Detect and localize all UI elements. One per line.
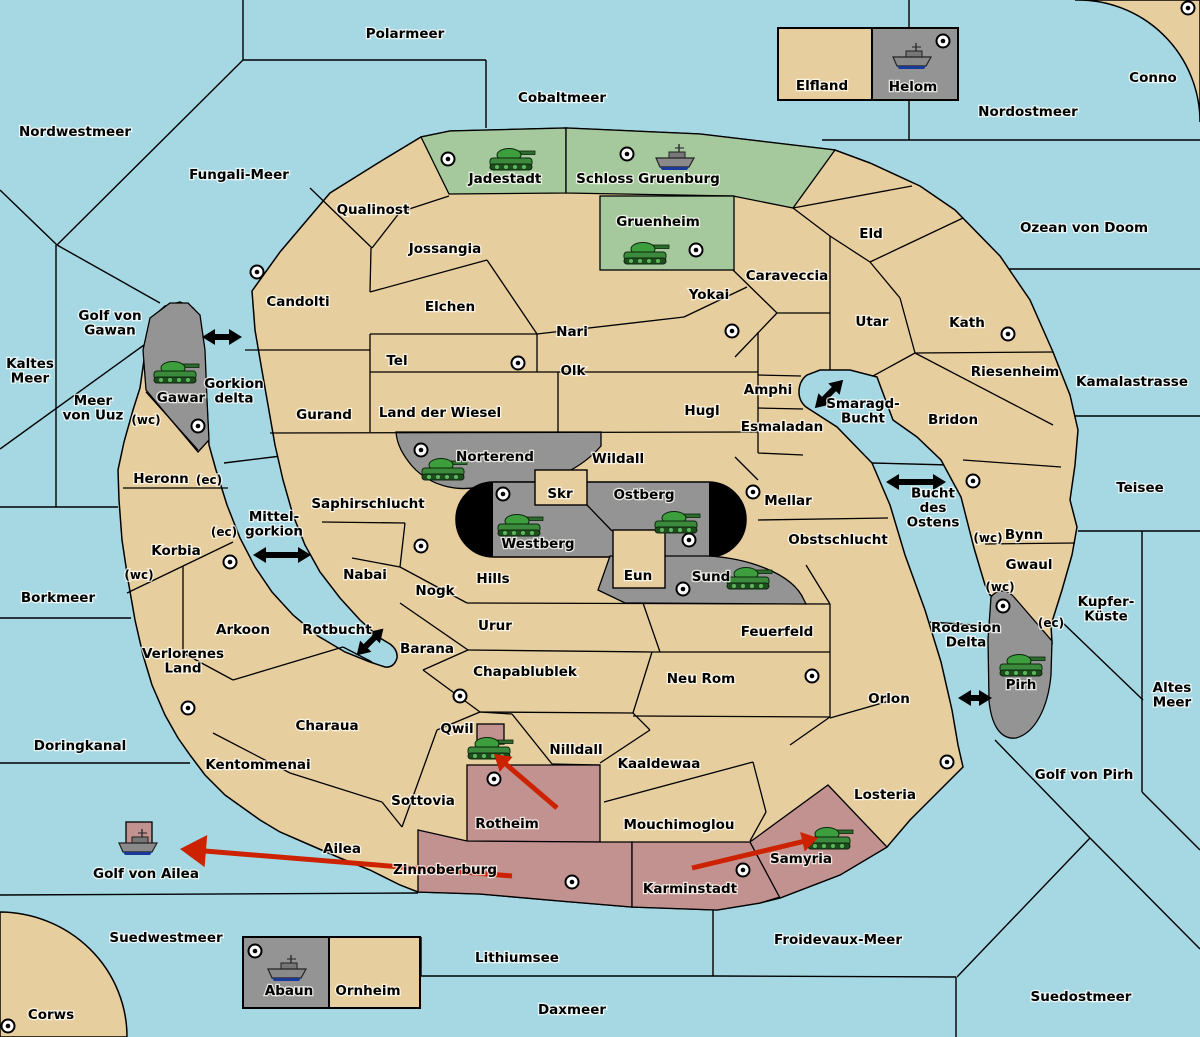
sea-border: [713, 976, 956, 977]
region-label[interactable]: Gruenheim: [616, 214, 700, 230]
region-label[interactable]: Gwaul: [1006, 557, 1053, 573]
region-label[interactable]: Abaun: [265, 983, 313, 999]
region-label[interactable]: Froidevaux-Meer: [774, 932, 902, 948]
region-label[interactable]: Westberg: [501, 536, 574, 552]
region-label[interactable]: Elchen: [425, 299, 475, 315]
region-label[interactable]: Teisee: [1116, 480, 1164, 496]
supply-center-icon: [182, 702, 195, 715]
supply-center-icon: [937, 35, 950, 48]
region-label[interactable]: Korbia: [151, 543, 201, 559]
region-label[interactable]: Fungali-Meer: [189, 167, 289, 183]
supply-center-icon: [997, 600, 1010, 613]
region-label[interactable]: Hugl: [684, 403, 719, 419]
region-label[interactable]: Nogk: [415, 583, 455, 599]
region-label[interactable]: Mellar: [764, 493, 812, 509]
region-label[interactable]: Bridon: [928, 412, 978, 428]
supply-center-icon: [737, 864, 750, 877]
region-label[interactable]: Elfland: [796, 78, 848, 94]
region-label[interactable]: Golf von Ailea: [93, 866, 199, 882]
region-label[interactable]: Norterend: [456, 449, 534, 465]
supply-center-icon: [621, 148, 634, 161]
region-label[interactable]: Chapablublek: [473, 664, 578, 680]
supply-center-icon: [1182, 2, 1195, 15]
region-label[interactable]: Nabai: [343, 567, 387, 583]
region-label[interactable]: Kaaldewaa: [618, 756, 701, 772]
region-label[interactable]: Pirh: [1006, 677, 1037, 693]
region-label[interactable]: Obstschlucht: [788, 532, 888, 548]
region-label[interactable]: Suedostmeer: [1031, 989, 1132, 1005]
region-gruenheim[interactable]: [600, 196, 734, 270]
region-label[interactable]: Ozean von Doom: [1020, 220, 1148, 236]
coast-marker: (ec): [1038, 616, 1064, 630]
region-label[interactable]: Olk: [560, 363, 586, 379]
region-label[interactable]: Gurand: [296, 407, 352, 423]
region-label[interactable]: Losteria: [854, 787, 916, 803]
region-label[interactable]: Doringkanal: [34, 738, 126, 754]
region-label[interactable]: Jossangia: [408, 241, 482, 257]
region-label[interactable]: Tel: [386, 353, 407, 369]
coast-marker: (wc): [131, 413, 160, 427]
game-map: PolarmeerCobaltmeerNordwestmeerFungali-M…: [0, 0, 1200, 1037]
region-label[interactable]: Eld: [859, 226, 883, 242]
supply-center-icon: [941, 756, 954, 769]
region-label[interactable]: Utar: [855, 314, 889, 330]
region-label[interactable]: Kamalastrasse: [1076, 374, 1188, 390]
region-label[interactable]: Rotheim: [475, 816, 539, 832]
region-label[interactable]: Skr: [547, 486, 573, 502]
supply-center-icon: [747, 486, 760, 499]
region-label[interactable]: Sottovia: [391, 793, 455, 809]
supply-center-icon: [967, 475, 980, 488]
region-label[interactable]: Kath: [949, 315, 985, 331]
supply-center-icon: [566, 876, 579, 889]
coast-marker: (wc): [985, 580, 1014, 594]
region-label[interactable]: Zinnoberburg: [393, 862, 497, 878]
coast-marker: (ec): [211, 525, 237, 539]
region-label[interactable]: Riesenheim: [971, 364, 1059, 380]
region-label[interactable]: Hills: [476, 571, 509, 587]
supply-center-icon: [677, 583, 690, 596]
region-label[interactable]: AltesMeer: [1153, 680, 1192, 711]
supply-center-icon: [415, 540, 428, 553]
region-label[interactable]: Lithiumsee: [475, 950, 559, 966]
map-canvas[interactable]: PolarmeerCobaltmeerNordwestmeerFungali-M…: [0, 0, 1200, 1037]
region-label[interactable]: Charaua: [295, 718, 358, 734]
supply-center-icon: [497, 488, 510, 501]
region-label[interactable]: Jadestadt: [468, 171, 542, 187]
coast-marker: (wc): [124, 568, 153, 582]
region-label[interactable]: Conno: [1129, 70, 1177, 86]
region-label[interactable]: Golf vonGawan: [78, 308, 141, 339]
region-label[interactable]: Mittel-gorkion: [245, 509, 303, 540]
region-label[interactable]: Feuerfeld: [741, 624, 814, 640]
region-label[interactable]: Helom: [889, 79, 937, 95]
region-label[interactable]: Eun: [624, 568, 652, 584]
region-label[interactable]: Ailea: [323, 841, 361, 857]
supply-center-icon: [454, 690, 467, 703]
region-label[interactable]: Nordwestmeer: [19, 124, 131, 140]
region-label[interactable]: Mouchimoglou: [623, 817, 734, 833]
region-label[interactable]: Heronn: [133, 471, 189, 487]
region-label[interactable]: KaltesMeer: [6, 356, 54, 387]
coast-marker: (wc): [973, 531, 1002, 545]
region-label[interactable]: Nordostmeer: [978, 104, 1078, 120]
supply-center-icon: [415, 444, 428, 457]
region-label[interactable]: Borkmeer: [21, 590, 96, 606]
supply-center-icon: [251, 266, 264, 279]
supply-center-icon: [249, 945, 262, 958]
supply-center-icon: [224, 556, 237, 569]
region-label[interactable]: Gawar: [157, 390, 206, 406]
region-label[interactable]: Nilldall: [549, 742, 602, 758]
region-label[interactable]: Wildall: [592, 451, 644, 467]
region-label[interactable]: Kupfer-Küste: [1078, 594, 1135, 625]
region-label[interactable]: Kentommenai: [205, 757, 310, 773]
supply-center-icon: [512, 357, 525, 370]
supply-center-icon: [806, 670, 819, 683]
region-label[interactable]: Qualinost: [337, 202, 410, 218]
supply-center-icon: [1002, 328, 1015, 341]
region-label[interactable]: Rotbucht: [302, 622, 372, 638]
region-label[interactable]: Suedwestmeer: [109, 930, 223, 946]
region-label[interactable]: Yokai: [688, 287, 730, 303]
region-label[interactable]: Ostberg: [613, 487, 674, 503]
region-label[interactable]: Samyria: [770, 851, 832, 867]
region-label[interactable]: Bynn: [1005, 527, 1043, 543]
region-label[interactable]: Barana: [400, 641, 454, 657]
coast-marker: (ec): [196, 473, 222, 487]
region-label[interactable]: Polarmeer: [366, 26, 445, 42]
region-label[interactable]: Schloss Gruenburg: [576, 171, 720, 187]
region-label[interactable]: Neu Rom: [667, 671, 736, 687]
region-label[interactable]: Amphi: [744, 382, 792, 398]
supply-center-icon: [2, 1020, 15, 1033]
supply-center-icon: [683, 534, 696, 547]
region-label[interactable]: Qwil: [440, 721, 473, 737]
region-label[interactable]: Ornheim: [335, 983, 400, 999]
region-label[interactable]: Golf von Pirh: [1035, 767, 1134, 783]
region-label[interactable]: Esmaladan: [741, 419, 824, 435]
supply-center-icon: [488, 773, 501, 786]
region-label[interactable]: Saphirschlucht: [311, 496, 425, 512]
region-label[interactable]: Urur: [478, 618, 512, 634]
region-label[interactable]: Nari: [556, 324, 588, 340]
supply-center-icon: [726, 325, 739, 338]
region-label[interactable]: Arkoon: [216, 622, 270, 638]
region-label[interactable]: Daxmeer: [538, 1002, 606, 1018]
region-label[interactable]: Cobaltmeer: [518, 90, 606, 106]
supply-center-icon: [442, 153, 455, 166]
supply-center-icon: [690, 244, 703, 257]
region-label[interactable]: Orlon: [868, 691, 910, 707]
region-label[interactable]: Corws: [28, 1007, 74, 1023]
region-label[interactable]: Karminstadt: [643, 881, 738, 897]
supply-center-icon: [192, 420, 205, 433]
region-label[interactable]: Land der Wiesel: [379, 405, 501, 421]
region-label[interactable]: Caraveccia: [746, 268, 828, 284]
region-label[interactable]: Sund: [692, 569, 731, 585]
region-label[interactable]: Candolti: [266, 294, 329, 310]
